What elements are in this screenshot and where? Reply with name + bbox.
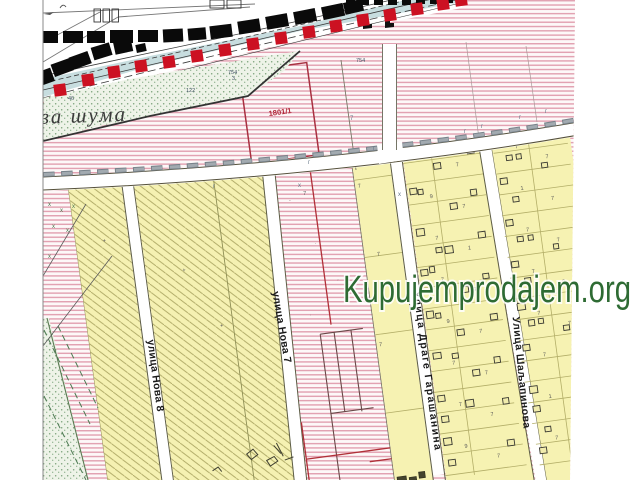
svg-text:x: x [52, 224, 55, 230]
svg-text:122: 122 [186, 88, 195, 94]
svg-text:x: x [48, 202, 51, 208]
svg-text:754: 754 [356, 58, 365, 64]
svg-text:ва шума: ва шума [39, 102, 127, 129]
svg-text:x: x [298, 183, 301, 189]
svg-text:x: x [48, 254, 51, 260]
svg-text:Kupujemprodajem.org: Kupujemprodajem.org [343, 269, 631, 311]
svg-text:7: 7 [573, 362, 577, 368]
svg-text:46: 46 [68, 96, 74, 102]
svg-text:x: x [398, 192, 401, 198]
svg-text:x: x [60, 208, 63, 214]
svg-text:7: 7 [580, 404, 584, 410]
svg-text:3: 3 [232, 76, 235, 82]
svg-text:x: x [72, 204, 75, 210]
svg-text:x: x [66, 228, 69, 234]
